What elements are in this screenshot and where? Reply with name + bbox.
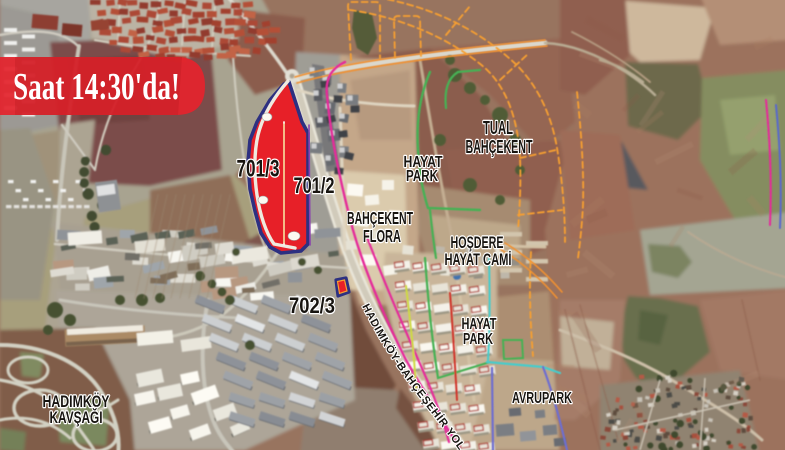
svg-text:701/3: 701/3 <box>237 156 280 183</box>
svg-text:AVRUPARK: AVRUPARK <box>512 390 572 407</box>
svg-text:702/3: 702/3 <box>289 293 335 318</box>
svg-text:FLORA: FLORA <box>363 226 401 246</box>
svg-text:PARK: PARK <box>406 168 438 185</box>
svg-text:701/2: 701/2 <box>294 173 335 198</box>
svg-text:BAHÇEKENT: BAHÇEKENT <box>466 137 533 157</box>
svg-text:TUAL: TUAL <box>483 118 513 138</box>
svg-text:HOŞDERE: HOŞDERE <box>451 234 504 252</box>
svg-text:Saat 14:30'da!: Saat 14:30'da! <box>13 66 180 108</box>
svg-text:PARK: PARK <box>463 331 494 348</box>
svg-text:KAVŞAĞI: KAVŞAĞI <box>50 408 103 427</box>
svg-text:HAYAT CAMİ: HAYAT CAMİ <box>445 251 512 269</box>
svg-text:BAHÇEKENT: BAHÇEKENT <box>347 208 413 228</box>
